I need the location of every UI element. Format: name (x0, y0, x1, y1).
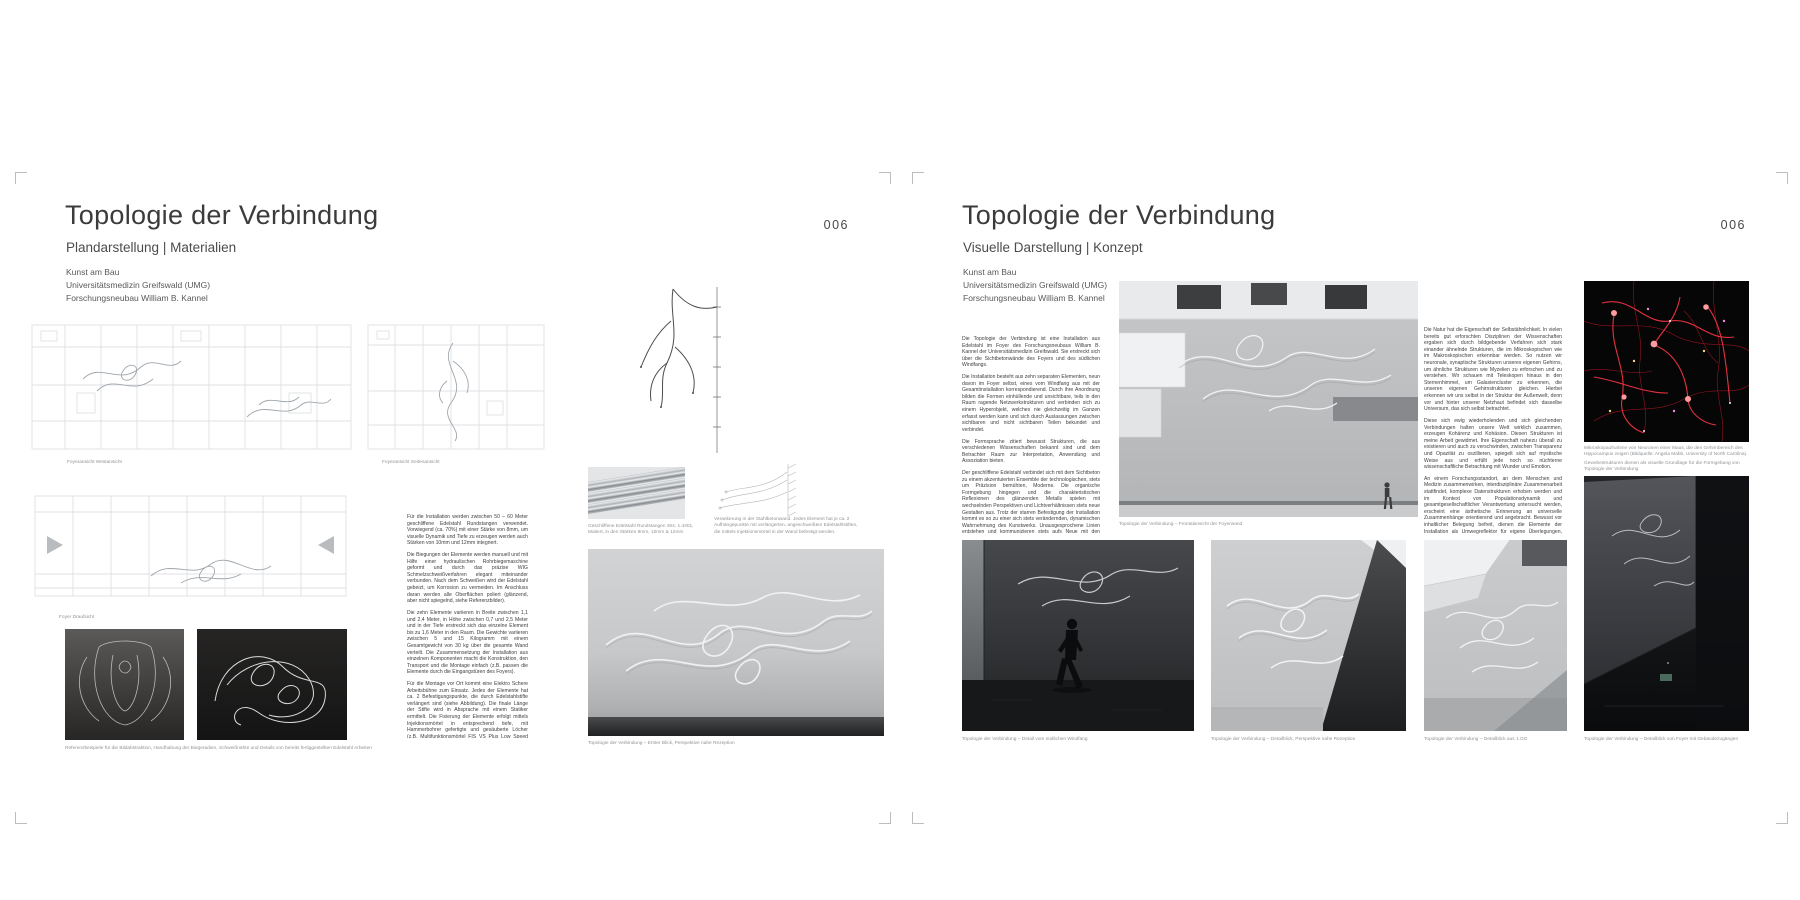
figure-branch-element-drawing (615, 281, 742, 459)
direction-arrow-icon (318, 536, 334, 554)
neuron-microscopy-image (1584, 281, 1749, 442)
foyer-dark-render (1584, 476, 1749, 731)
caption-plan-west: Foyeransicht Westansicht (67, 460, 122, 466)
figure-floor-plan-west (31, 321, 352, 453)
wall-anchor-sketch (714, 462, 806, 519)
figure-reception-detail-render (1211, 540, 1406, 731)
caption-neuron-line2: Gewebestrukturen dienen als visuelle Gru… (1584, 461, 1749, 474)
caption-neuron-line1: Mikroskopaufnahme von Neuronen einer Mau… (1584, 446, 1749, 459)
figure-windfang-render (962, 540, 1194, 731)
page-left: Topologie der Verbindung Plandarstellung… (21, 178, 885, 817)
caption-og: Topologie der Verbindung – Detailblick a… (1424, 737, 1574, 743)
direction-arrow-icon (47, 536, 63, 554)
paragraph: Die zehn Elemente variieren in Breite zw… (407, 610, 528, 676)
floor-plan-west-drawing (31, 321, 352, 453)
figure-reference-wire-photo (197, 629, 347, 740)
paragraph: An einem Forschungsstandort, an dem Mens… (1424, 476, 1562, 535)
figure-foyer-main-render (1119, 281, 1418, 517)
concept-text-column-2: Die Natur hat die Eigenschaft der Selbst… (1424, 327, 1562, 535)
floor-plan-side-drawing (367, 321, 545, 453)
credits-line: Kunst am Bau (66, 266, 210, 279)
floor-plan-top-drawing (31, 488, 350, 611)
project-credits: Kunst am Bau Universitätsmedizin Greifsw… (66, 266, 210, 304)
page-number: 006 (824, 218, 849, 232)
credits-line: Forschungsneubau William B. Kannel (66, 292, 210, 305)
figure-installation-hero-photo (588, 549, 884, 736)
page-right: Topologie der Verbindung Visuelle Darste… (918, 178, 1782, 817)
figure-steel-rods-photo (588, 467, 685, 519)
page-subtitle: Plandarstellung | Materialien (66, 240, 236, 255)
steel-rods-photo (588, 467, 685, 519)
portfolio-spread: { "colors": { "paper": "#ffffff", "ink":… (0, 0, 1800, 900)
credits-line: Universitätsmedizin Greifswald (UMG) (66, 279, 210, 292)
paragraph: Diese sich ewig wiederholenden und sich … (1424, 418, 1562, 471)
page-title: Topologie der Verbindung (962, 200, 1275, 231)
caption-plan-side: Foyeransicht Seitenansicht (382, 460, 440, 466)
concept-text-column-1: Die Topologie der Verbindung ist eine In… (962, 336, 1100, 536)
project-credits: Kunst am Bau Universitätsmedizin Greifsw… (963, 266, 1107, 304)
installation-hero-photo (588, 549, 884, 736)
page-number: 006 (1721, 218, 1746, 232)
figure-floor-plan-side (367, 321, 545, 453)
reference-sketch-photo (65, 629, 184, 740)
branch-element-drawing (615, 281, 742, 459)
paragraph: Für die Montage vor Ort kommt eine Elekt… (407, 681, 528, 738)
reception-detail-render (1211, 540, 1406, 731)
caption-plan-top: Foyer Draufsicht (59, 615, 94, 621)
caption-main-render: Topologie der Verbindung – Frontalansich… (1119, 522, 1409, 528)
paragraph: Die Formsprache zitiert bewusst Struktur… (962, 439, 1100, 465)
paragraph: Die Biegungen der Elemente werden manuel… (407, 552, 528, 605)
body-text-column: Für die Installation werden zwischen 50 … (407, 514, 528, 738)
caption-steel-rods: Geschliffene Edelstahl Rundstangen 304, … (588, 524, 700, 537)
reference-wire-photo (197, 629, 347, 740)
paragraph: Die Natur hat die Eigenschaft der Selbst… (1424, 327, 1562, 413)
credits-line: Forschungsneubau William B. Kannel (963, 292, 1107, 305)
figure-reference-sketch-photo (65, 629, 184, 740)
foyer-main-render (1119, 281, 1418, 517)
caption-windfang: Topologie der Verbindung – Detail vom sü… (962, 737, 1194, 743)
caption-hero: Topologie der Verbindung – Erster Blick,… (588, 741, 878, 747)
caption-reference: Referenzbeispiele für die Bildabstraktio… (65, 746, 505, 752)
credits-line: Universitätsmedizin Greifswald (UMG) (963, 279, 1107, 292)
page-title: Topologie der Verbindung (65, 200, 378, 231)
caption-wall-anchor: Verankerung in der Stahlbetonwand. Jedes… (714, 517, 864, 536)
paragraph: Für die Installation werden zwischen 50 … (407, 514, 528, 547)
figure-floor-plan-top (31, 488, 350, 611)
paragraph: Die Installation besteht aus zehn separa… (962, 374, 1100, 433)
caption-reception: Topologie der Verbindung – Detailblick, … (1211, 737, 1406, 743)
caption-dark-render: Topologie der Verbindung – Detailblick v… (1584, 737, 1749, 743)
figure-upper-floor-render (1424, 540, 1567, 731)
page-subtitle: Visuelle Darstellung | Konzept (963, 240, 1143, 255)
figure-neuron-microscopy-image (1584, 281, 1749, 442)
paragraph: Der geschliffene Edelstahl verbindet sic… (962, 470, 1100, 536)
upper-floor-render (1424, 540, 1567, 731)
figure-wall-anchor-sketch (714, 462, 806, 519)
figure-foyer-dark-render (1584, 476, 1749, 731)
paragraph: Die Topologie der Verbindung ist eine In… (962, 336, 1100, 369)
credits-line: Kunst am Bau (963, 266, 1107, 279)
windfang-render (962, 540, 1194, 731)
